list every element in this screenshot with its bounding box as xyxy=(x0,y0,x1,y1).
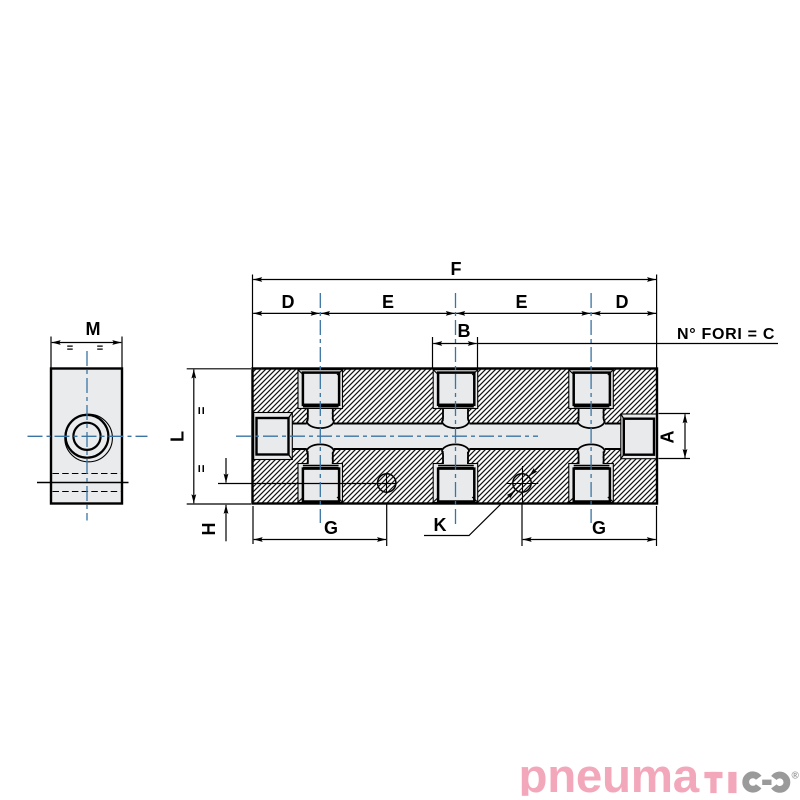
svg-text:pneuma: pneuma xyxy=(519,750,700,800)
svg-text:=: = xyxy=(194,464,209,472)
svg-text:G: G xyxy=(324,518,338,538)
svg-text:H: H xyxy=(199,523,219,536)
svg-text:G: G xyxy=(592,518,606,538)
svg-text:A: A xyxy=(658,431,678,444)
svg-text:D: D xyxy=(282,292,295,312)
svg-text:=: = xyxy=(67,343,73,355)
svg-text:M: M xyxy=(86,319,101,339)
svg-text:B: B xyxy=(458,321,471,341)
svg-text:F: F xyxy=(451,259,462,279)
svg-text:=: = xyxy=(194,406,209,414)
svg-text:D: D xyxy=(616,292,629,312)
svg-text:E: E xyxy=(382,292,394,312)
svg-text:E: E xyxy=(515,292,527,312)
svg-text:K: K xyxy=(434,515,447,535)
svg-text:®: ® xyxy=(792,771,800,782)
svg-text:L: L xyxy=(168,431,188,442)
svg-text:N° FORI = C: N° FORI = C xyxy=(677,326,775,343)
svg-text:=: = xyxy=(97,343,103,355)
